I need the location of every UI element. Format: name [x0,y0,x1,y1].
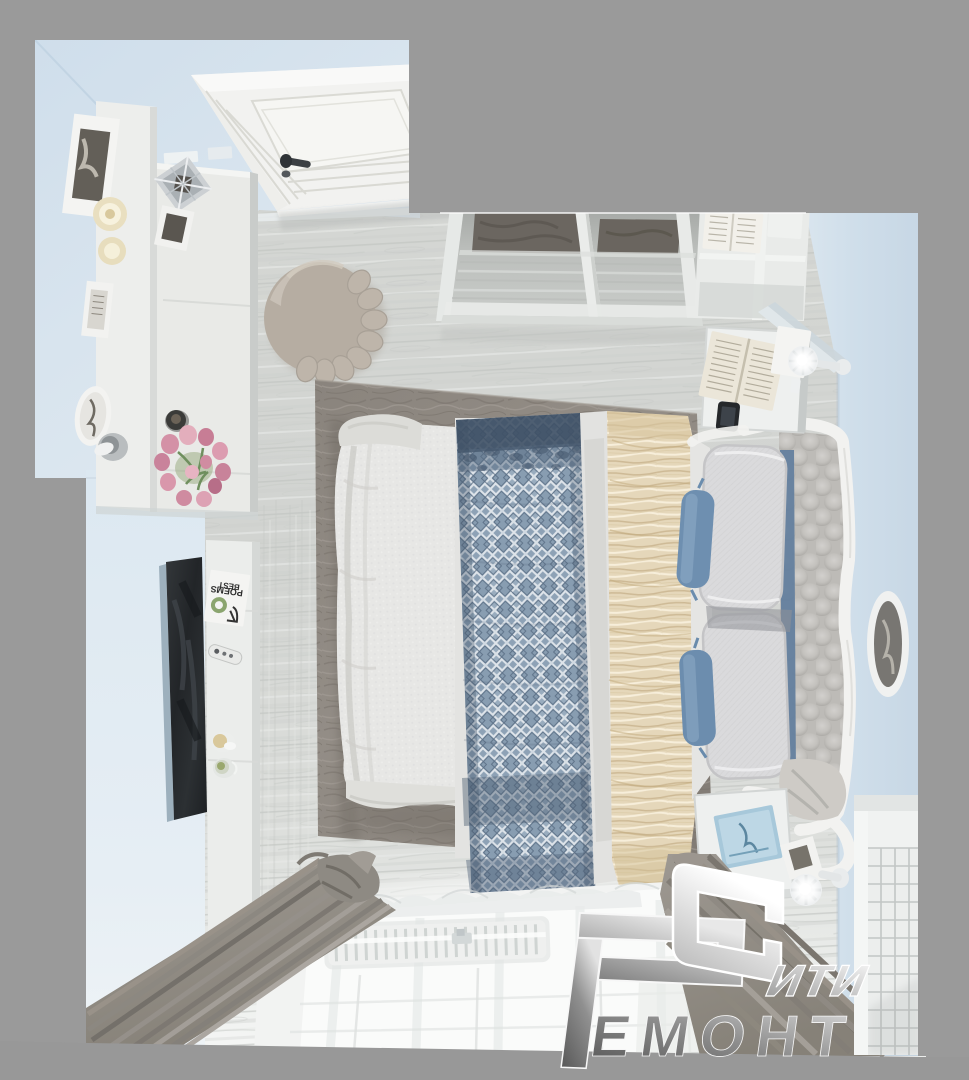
svg-text:ЕМОНТ: ЕМОНТ [587,1004,860,1069]
